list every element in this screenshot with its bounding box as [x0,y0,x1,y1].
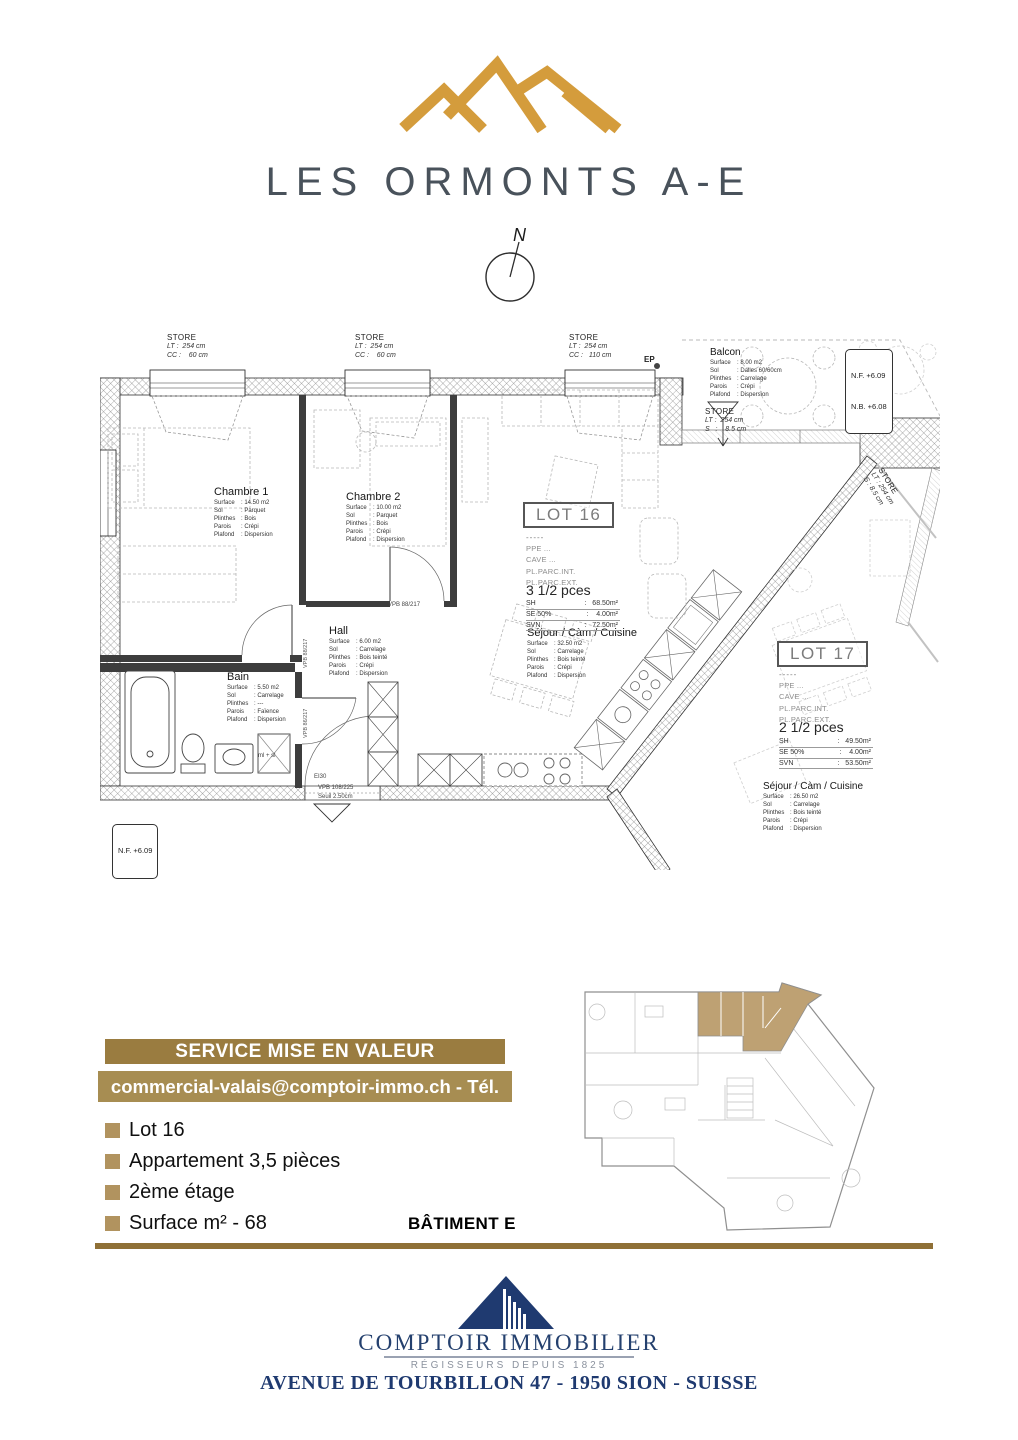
lot16-dash: ----- [526,533,544,542]
ep-label: EP [644,355,655,364]
detail-surface: Surface m² - 68 [105,1212,267,1235]
level-box-left: N.F. +6.09 [112,824,158,879]
contact-banner: commercial-valais@comptoir-immo.ch - Tél… [98,1071,512,1102]
footer-underline [384,1356,634,1358]
footer-company: COMPTOIR IMMOBILIER [0,1330,1018,1356]
kitchen-counter [418,754,582,786]
north-compass-icon: N [480,225,552,307]
footer-tagline: RÉGISSEURS DEPUIS 1825 [0,1360,1018,1371]
bullet-icon [105,1216,120,1231]
flyer-page: LES ORMONTS A-E N [0,0,1018,1440]
lot17-title: LOT 17 [777,641,868,667]
bullet-icon [105,1154,120,1169]
vpb-door-label: VPB 108/225 [318,785,353,791]
lot16-title: LOT 16 [523,502,614,528]
bullet-icon [105,1185,120,1200]
page-title: LES ORMONTS A-E [0,160,1018,205]
mountains-logo-icon [395,52,625,152]
room-label-balcon: Balcon Surface: 8.00 m2 Sol: Dalles 60/6… [710,347,782,399]
store-label-3: STORE LT : 254 cm CC : 110 cm [569,333,611,360]
comptoir-immobilier-logo-icon [458,1276,554,1329]
lot16-pieces: 3 1/2 pces [526,582,591,598]
washer-dryer-label: ml + sl [258,753,276,759]
vpb-b-label: VPB 86/217 [303,709,309,738]
building-overview-plan [575,978,935,1240]
room-label-chambre-1: Chambre 1 Surface: 14.50 m2 Sol: Parquet… [214,486,273,539]
vpb-a-label: VPB 88/217 [303,639,309,668]
detail-lot: Lot 16 [105,1119,185,1142]
batiment-label: BÂTIMENT E [408,1214,516,1234]
lot17-metrics: SH: 49.50m² SE 50%: 4.00m² SVN: 53.50m² [779,737,873,769]
lot17-dash: ----- [779,670,797,679]
service-banner: SERVICE MISE EN VALEUR [105,1039,505,1064]
room-label-bain: Bain Surface: 5.50 m2 Sol: Carrelage Pli… [227,671,286,724]
wardrobe [368,682,398,786]
detail-floor: 2ème étage [105,1181,235,1204]
store-label-1: STORE LT : 254 cm CC : 60 cm [167,333,208,360]
vpb-c-label: VPB 88/217 [388,602,420,608]
level-box-top: N.F. +6.09 N.B. +6.08 [845,349,893,434]
store-label-2: STORE LT : 254 cm CC : 60 cm [355,333,396,360]
lot16-metrics: SH: 68.50m² SE 50%: 4.00m² SVN: 72.50m² [526,599,620,631]
lot17-pieces: 2 1/2 pces [779,719,844,735]
bullet-icon [105,1123,120,1138]
room-label-hall: Hall Surface: 6.00 m2 Sol: Carrelage Pli… [329,625,388,678]
svg-text:N: N [513,225,527,245]
seuil-label: Seuil 2.50cm [318,794,353,800]
store-label-4: STORE LT : 254 cm S : 8.5 cm [705,407,746,434]
room-label-sejour-lot16: Séjour / Càm / Cuisine Surface: 32.50 m2… [527,627,637,680]
detail-apartment: Appartement 3,5 pièces [105,1150,340,1173]
footer-address: AVENUE DE TOURBILLON 47 - 1950 SION - SU… [0,1372,1018,1395]
ei30-label: EI30 [314,774,326,780]
gold-divider [95,1243,933,1249]
room-label-chambre-2: Chambre 2 Surface: 10.00 m2 Sol: Parquet… [346,491,405,544]
room-label-sejour-lot17: Séjour / Càm / Cuisine Surface: 26.50 m2… [763,781,863,833]
